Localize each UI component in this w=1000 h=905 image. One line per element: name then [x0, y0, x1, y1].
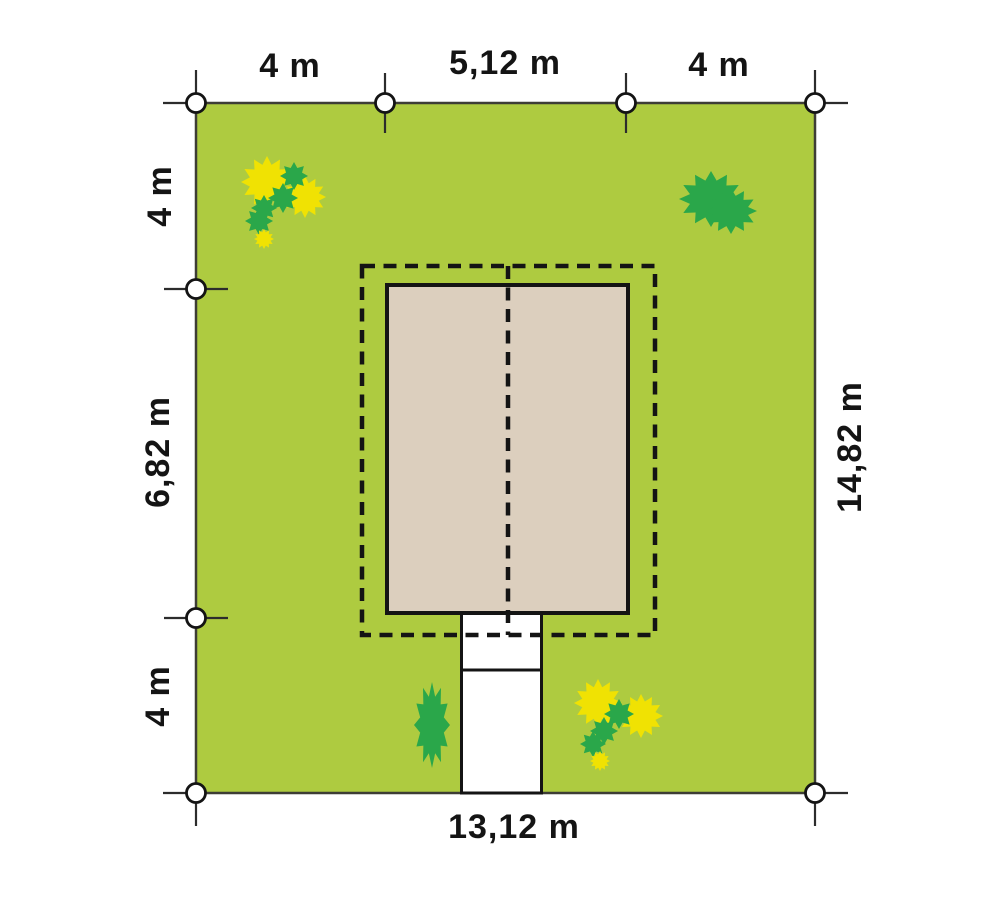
survey-marker-icon — [187, 609, 206, 628]
survey-marker-icon — [617, 94, 636, 113]
survey-marker-icon — [376, 94, 395, 113]
survey-marker-icon — [806, 94, 825, 113]
dimension-label-top-middle: 5,12 m — [449, 46, 561, 80]
dimension-label-top-right: 4 m — [688, 48, 750, 82]
dimension-label-left-top: 4 m — [143, 165, 177, 227]
dimension-label-left-bottom: 4 m — [141, 665, 175, 727]
survey-marker-icon — [187, 280, 206, 299]
dimension-label-left-middle: 6,82 m — [141, 396, 175, 508]
dimension-label-bottom: 13,12 m — [448, 810, 580, 844]
driveway — [462, 613, 542, 793]
site-plan: 4 m 5,12 m 4 m 4 m 6,82 m 4 m 14,82 m 13… — [0, 0, 1000, 905]
survey-marker-icon — [187, 784, 206, 803]
dimension-label-right: 14,82 m — [833, 381, 867, 513]
survey-marker-icon — [187, 94, 206, 113]
dimension-label-top-left: 4 m — [259, 49, 321, 83]
survey-marker-icon — [806, 784, 825, 803]
shrub-green-icon — [580, 731, 606, 757]
